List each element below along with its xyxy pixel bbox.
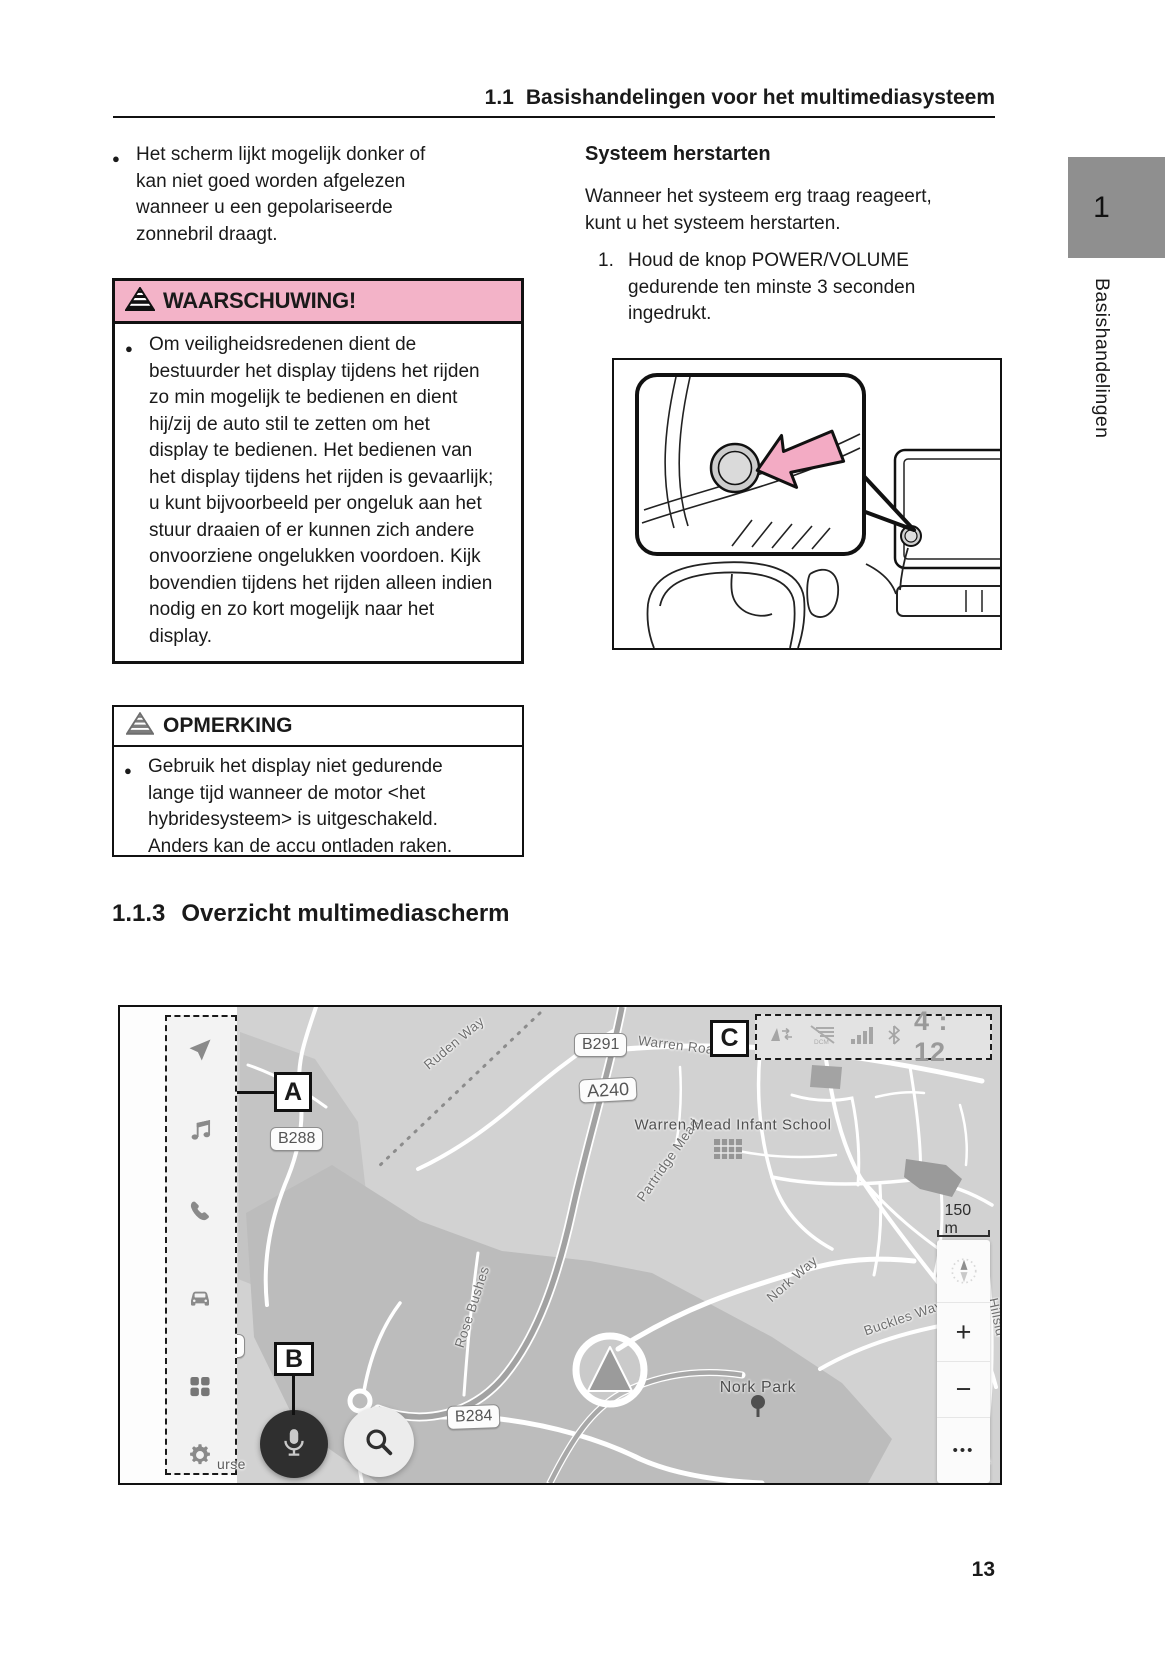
- status-bar: DCM 4 : 12: [755, 1014, 992, 1060]
- car-icon: [185, 1280, 215, 1315]
- svg-text:DCM: DCM: [814, 1039, 829, 1045]
- callout-marker-c: C: [710, 1020, 749, 1057]
- navigation-arrow-icon: [186, 1036, 214, 1069]
- road-shield: B291: [574, 1033, 627, 1057]
- header-rule: [113, 116, 995, 118]
- list-item: ● Om veiligheidsredenen dient de bestuur…: [125, 332, 511, 650]
- gps-arrows-icon: [767, 1025, 794, 1049]
- note-box-body: ● Gebruik het display niet gedurende lan…: [114, 747, 522, 860]
- microphone-icon: [281, 1427, 307, 1461]
- app-grid-icon: [187, 1373, 214, 1405]
- list-item: ● Gebruik het display niet gedurende lan…: [124, 754, 514, 860]
- note-box: OPMERKING ● Gebruik het display niet ged…: [112, 705, 524, 857]
- warning-box-title: WAARSCHUWING!: [163, 288, 356, 314]
- zoom-out-button: −: [937, 1361, 990, 1417]
- road-shield: B284: [447, 1404, 501, 1430]
- marker-b-leader-line: [292, 1373, 295, 1415]
- bullet-dot: ●: [112, 142, 136, 248]
- road-shield: B288: [270, 1127, 323, 1151]
- place-name: Nork Park: [720, 1379, 797, 1397]
- street-name: urse: [217, 1456, 246, 1472]
- road-shield: A240: [578, 1076, 637, 1103]
- subsection-heading: Systeem herstarten: [585, 143, 771, 166]
- step-number: 1.: [598, 248, 628, 328]
- compass-button: [937, 1240, 990, 1302]
- multimedia-screen-figure: 4: [118, 1005, 1002, 1485]
- striped-pyramid-warning-icon: [125, 287, 155, 316]
- bullet-dot: ●: [125, 332, 149, 650]
- phone-icon: [186, 1198, 214, 1231]
- school-building-icon: [714, 1139, 742, 1159]
- paragraph: Wanneer het systeem erg traag reageert, …: [585, 184, 941, 237]
- compass-icon: [950, 1255, 978, 1287]
- list-item: ● Het scherm lijkt mogelijk donker of ka…: [112, 142, 464, 248]
- numbered-step: 1. Houd de knop POWER/VOLUME gedurende t…: [598, 248, 958, 328]
- list-item-text: Om veiligheidsredenen dient de bestuurde…: [149, 332, 494, 650]
- page-header-title: 1.1Basishandelingen voor het multimedias…: [115, 86, 995, 110]
- note-box-title: OPMERKING: [163, 714, 293, 738]
- region-a-dashed-outline: [165, 1015, 237, 1475]
- chapter-number: 1: [1093, 191, 1110, 225]
- marker-a-leader-line: [237, 1091, 274, 1094]
- list-item-text: Het scherm lijkt mogelijk donker of kan …: [136, 142, 458, 248]
- warning-box-header: WAARSCHUWING!: [115, 281, 521, 324]
- building-shape: [810, 1065, 842, 1089]
- dcm-offline-icon: DCM: [807, 1024, 838, 1050]
- warning-box: WAARSCHUWING! ● Om veiligheidsredenen di…: [112, 278, 524, 664]
- header-section-number: 1.1: [485, 86, 514, 109]
- callout-marker-a: A: [274, 1072, 312, 1112]
- zoom-in-button: +: [937, 1302, 990, 1361]
- map-control-panel: + − •••: [937, 1240, 990, 1483]
- bullet-dot: ●: [124, 754, 148, 860]
- page-number: 13: [900, 1558, 995, 1582]
- map-scale-bar: [937, 1230, 990, 1237]
- magnifier-icon: [363, 1426, 395, 1458]
- more-options-button: •••: [937, 1417, 990, 1483]
- chapter-tab: 1: [1068, 157, 1165, 258]
- warning-box-body: ● Om veiligheidsredenen dient de bestuur…: [115, 324, 521, 650]
- current-position-marker: [576, 1336, 644, 1404]
- map-image: [120, 1007, 1000, 1483]
- music-note-icon: [186, 1116, 214, 1149]
- header-section-title: Basishandelingen voor het multimediasyst…: [526, 86, 995, 109]
- step-text: Houd de knop POWER/VOLUME gedurende ten …: [628, 248, 943, 328]
- signal-bars-icon: [851, 1026, 874, 1049]
- manual-page: 1.1Basishandelingen voor het multimedias…: [0, 0, 1165, 1653]
- dashboard-illustration: [612, 358, 1002, 650]
- place-name: Warren Mead Infant School: [634, 1117, 831, 1134]
- list-item-text: Gebruik het display niet gedurende lange…: [148, 754, 493, 860]
- section-number: 1.1.3: [112, 900, 165, 927]
- chapter-vertical-label: Basishandelingen: [1090, 278, 1113, 438]
- bluetooth-icon: [887, 1025, 901, 1050]
- clock: 4 : 12: [914, 1006, 980, 1068]
- search-button: [344, 1407, 414, 1477]
- microphone-button: [260, 1410, 328, 1478]
- settings-gear-icon: [186, 1441, 214, 1474]
- section-title: Overzicht multimediascherm: [181, 900, 509, 927]
- callout-marker-b: B: [274, 1342, 314, 1376]
- note-box-header: OPMERKING: [114, 707, 522, 747]
- intro-bullet-list: ● Het scherm lijkt mogelijk donker of ka…: [112, 142, 464, 248]
- section-heading: 1.1.3Overzicht multimediascherm: [112, 900, 510, 928]
- striped-pyramid-note-icon: [126, 712, 154, 740]
- dashboard-drawing: [614, 360, 1000, 648]
